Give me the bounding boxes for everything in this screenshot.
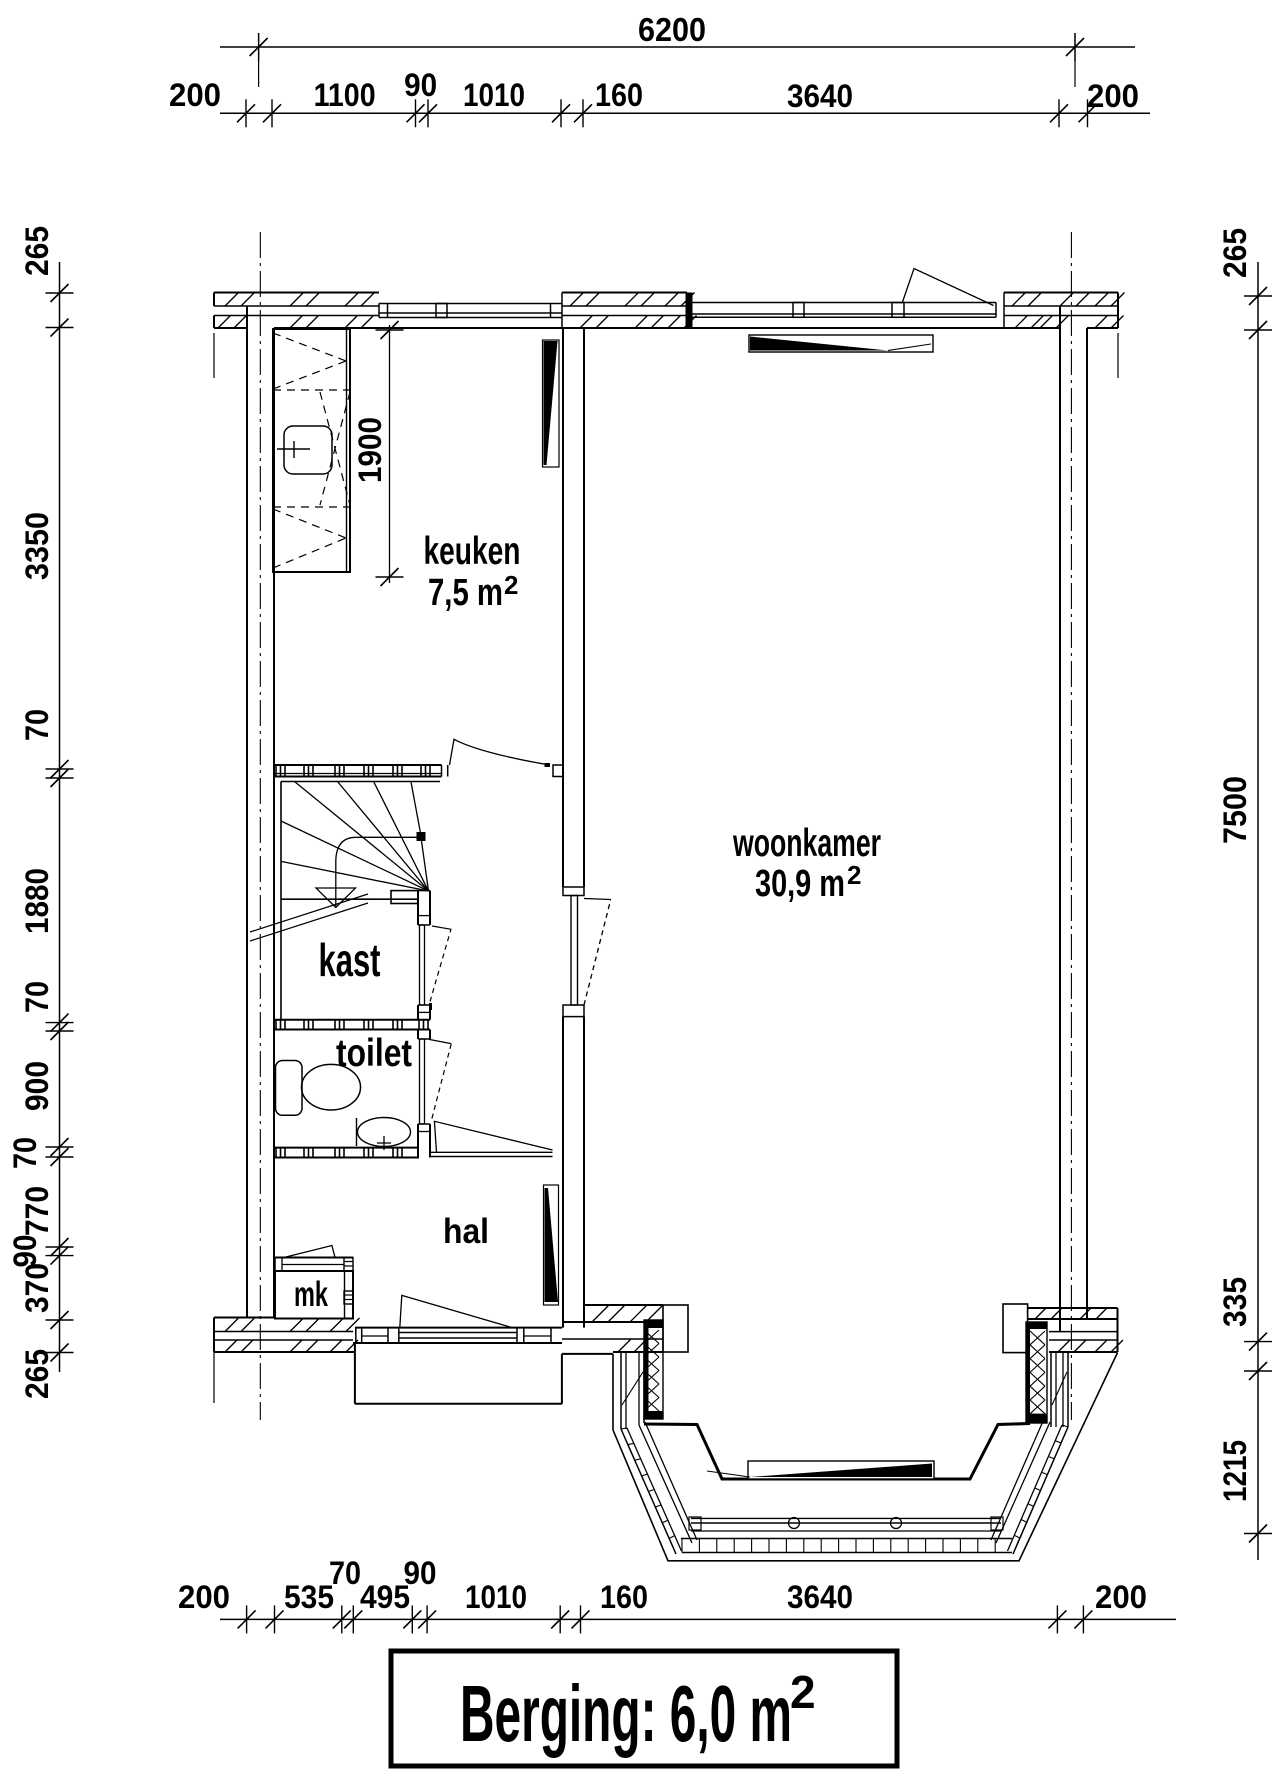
svg-text:6200: 6200 xyxy=(638,11,706,48)
svg-text:2: 2 xyxy=(847,860,861,890)
svg-text:770: 770 xyxy=(19,1186,55,1236)
svg-text:1880: 1880 xyxy=(19,868,55,934)
svg-text:1900: 1900 xyxy=(352,417,388,483)
svg-text:30,9 m: 30,9 m xyxy=(755,863,845,905)
svg-text:495: 495 xyxy=(360,1579,410,1615)
svg-text:370: 370 xyxy=(19,1263,55,1313)
svg-text:2: 2 xyxy=(790,1666,816,1718)
svg-text:265: 265 xyxy=(1217,228,1253,278)
svg-text:1010: 1010 xyxy=(463,77,525,113)
svg-text:90: 90 xyxy=(7,1235,43,1268)
svg-text:7500: 7500 xyxy=(1217,776,1253,844)
svg-text:265: 265 xyxy=(19,1349,55,1399)
svg-text:mk: mk xyxy=(294,1275,328,1314)
svg-text:265: 265 xyxy=(19,226,55,276)
svg-text:woonkamer: woonkamer xyxy=(732,822,881,865)
svg-text:1215: 1215 xyxy=(1217,1440,1253,1502)
svg-text:70: 70 xyxy=(7,1137,43,1169)
svg-text:hal: hal xyxy=(443,1212,489,1251)
svg-text:200: 200 xyxy=(178,1579,230,1615)
svg-text:535: 535 xyxy=(284,1579,334,1615)
svg-text:1100: 1100 xyxy=(314,77,376,113)
svg-text:160: 160 xyxy=(595,77,643,113)
svg-text:70: 70 xyxy=(19,709,55,741)
svg-text:7,5 m: 7,5 m xyxy=(428,572,503,614)
svg-text:160: 160 xyxy=(600,1579,648,1615)
svg-text:200: 200 xyxy=(169,77,221,113)
svg-text:3640: 3640 xyxy=(787,78,853,114)
svg-text:kast: kast xyxy=(319,934,381,986)
svg-text:keuken: keuken xyxy=(424,530,521,573)
svg-text:Berging: 6,0 m: Berging: 6,0 m xyxy=(460,1669,792,1758)
svg-text:90: 90 xyxy=(404,1555,437,1591)
svg-text:2: 2 xyxy=(504,570,518,600)
svg-text:200: 200 xyxy=(1087,78,1139,114)
svg-text:900: 900 xyxy=(19,1061,55,1111)
svg-text:70: 70 xyxy=(19,981,55,1013)
svg-text:3640: 3640 xyxy=(787,1579,853,1615)
svg-text:200: 200 xyxy=(1095,1579,1147,1615)
svg-text:335: 335 xyxy=(1217,1277,1253,1327)
svg-text:1010: 1010 xyxy=(465,1579,527,1615)
svg-text:90: 90 xyxy=(404,67,437,103)
svg-text:70: 70 xyxy=(329,1555,361,1591)
svg-text:3350: 3350 xyxy=(19,512,55,580)
